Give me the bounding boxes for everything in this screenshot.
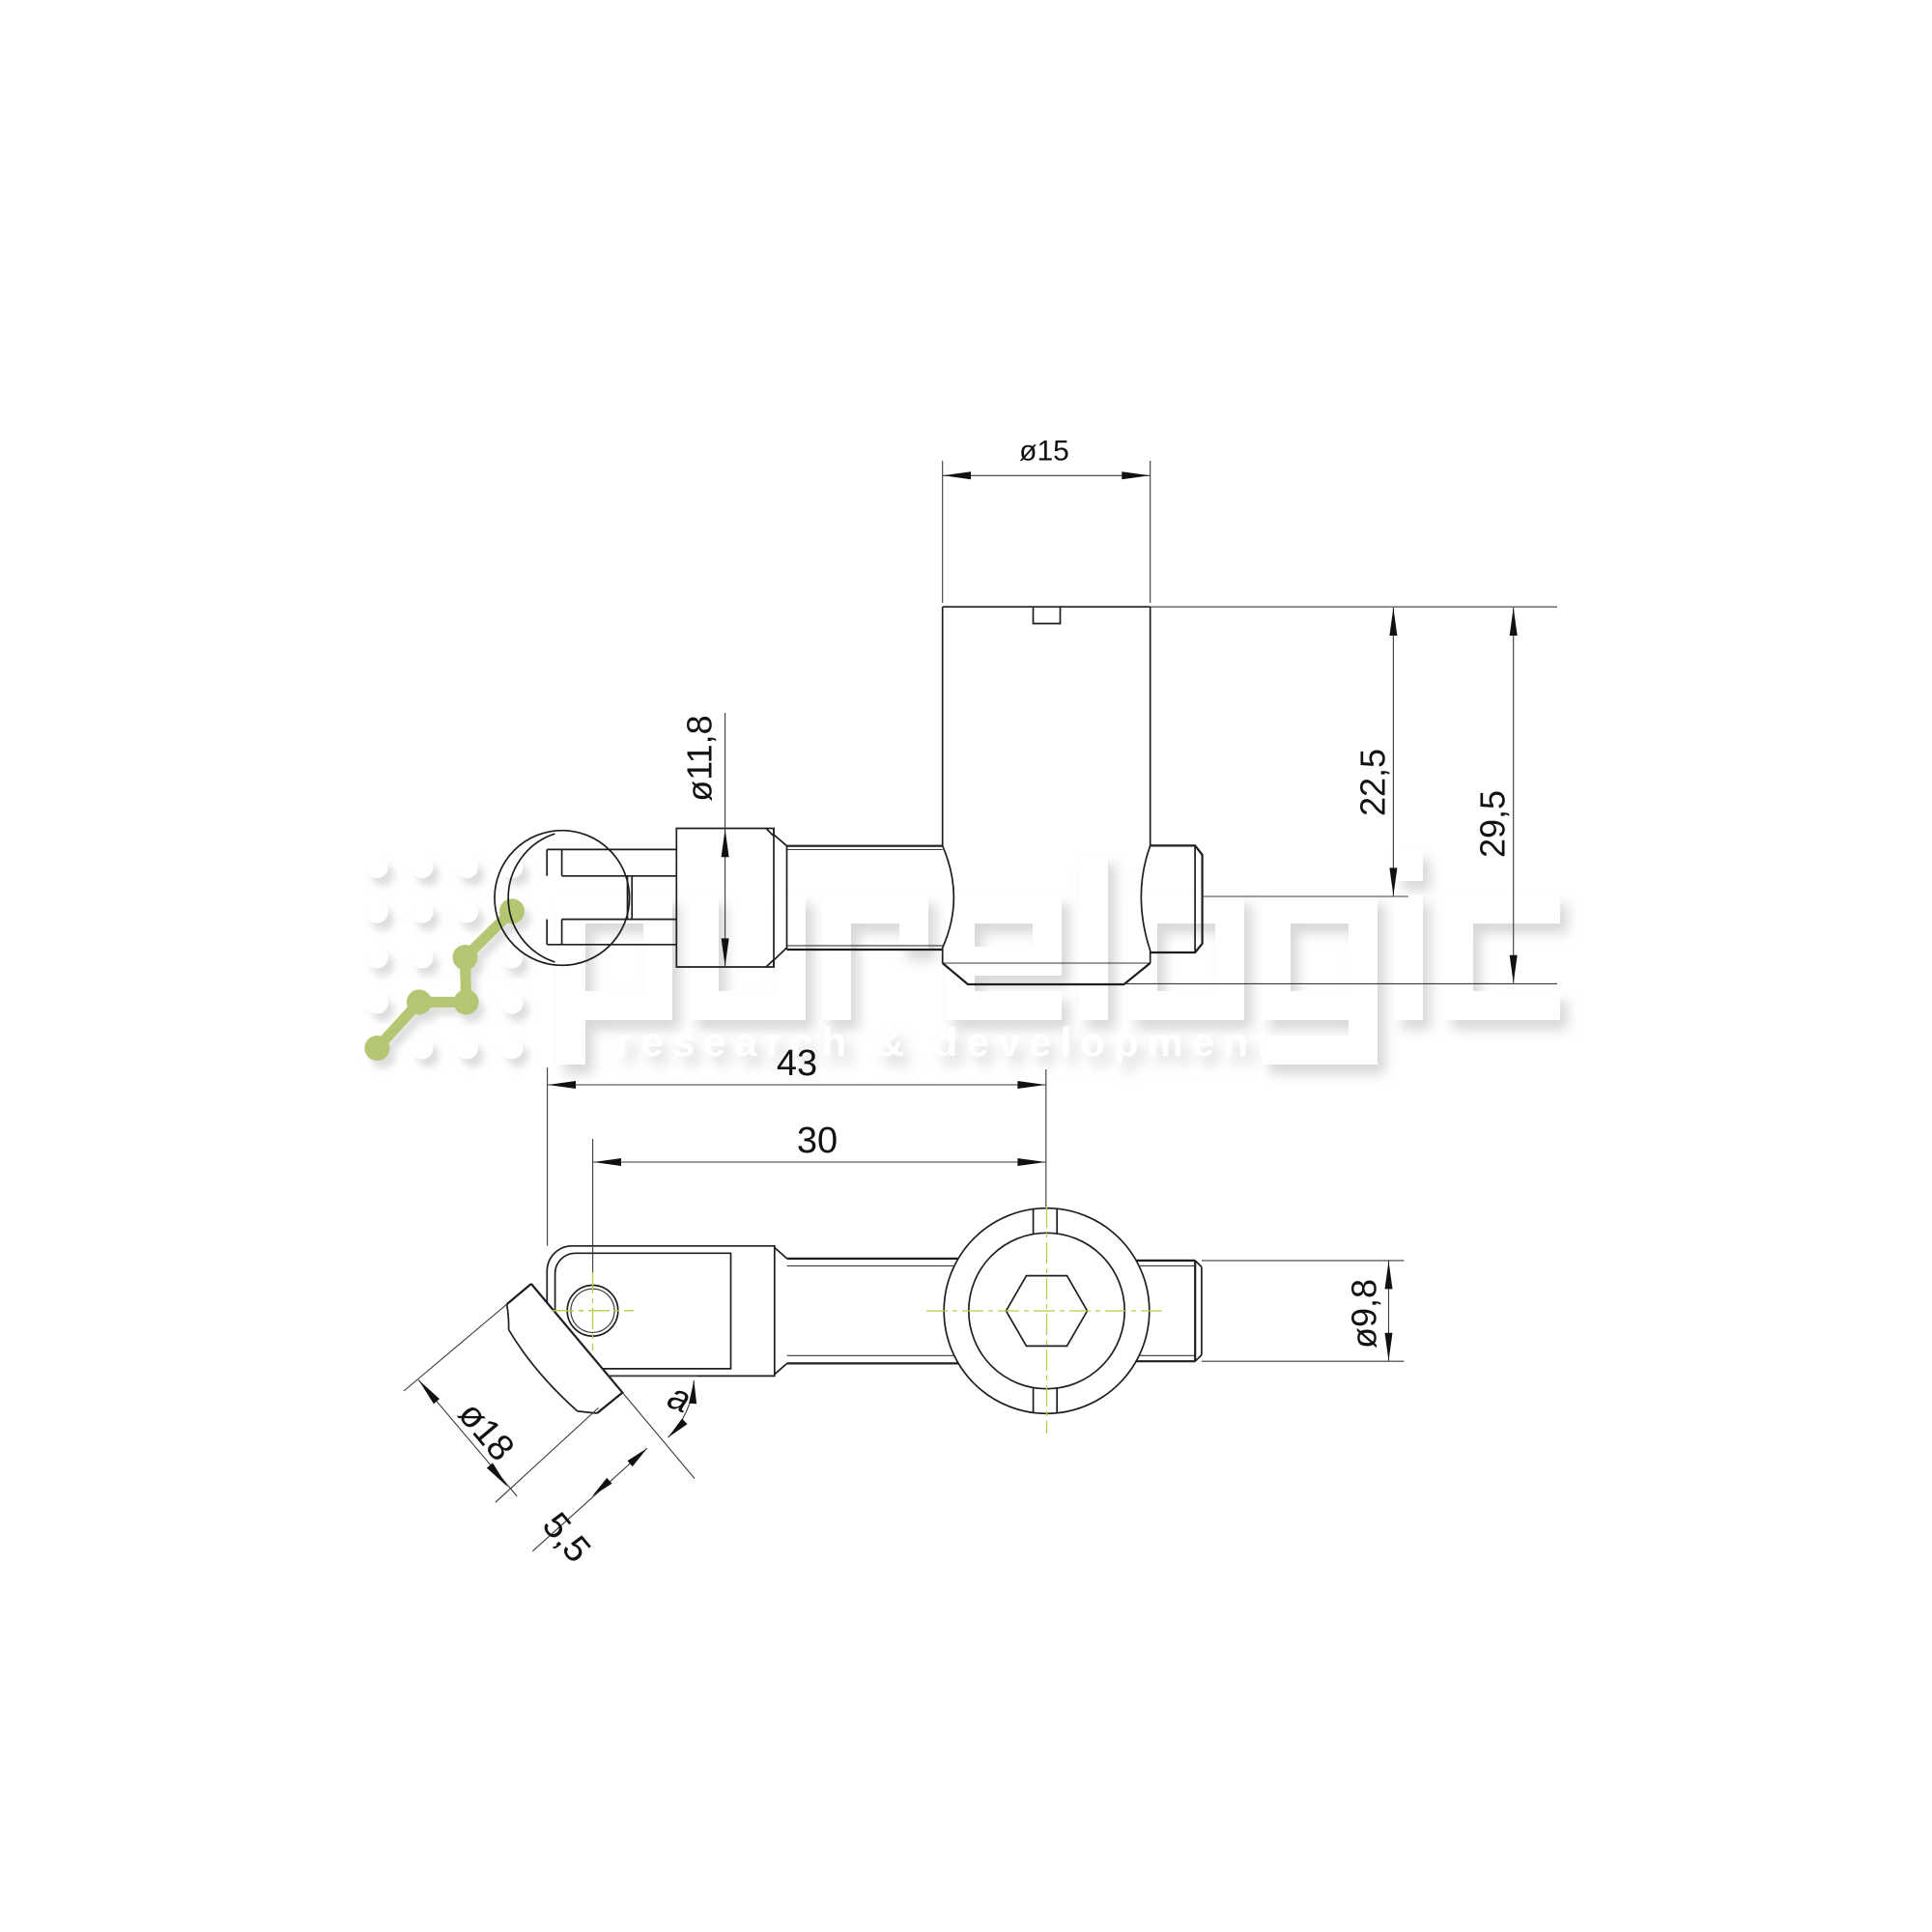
- svg-text:22,5: 22,5: [1353, 749, 1393, 816]
- svg-text:29,5: 29,5: [1473, 790, 1513, 858]
- svg-text:research & development: research & development: [616, 1019, 1279, 1065]
- svg-text:43: 43: [777, 1043, 817, 1084]
- svg-text:ø15: ø15: [1019, 436, 1069, 468]
- svg-text:ø9,8: ø9,8: [1345, 1279, 1384, 1349]
- svg-text:ø11,8: ø11,8: [680, 715, 720, 801]
- svg-text:30: 30: [797, 1121, 838, 1161]
